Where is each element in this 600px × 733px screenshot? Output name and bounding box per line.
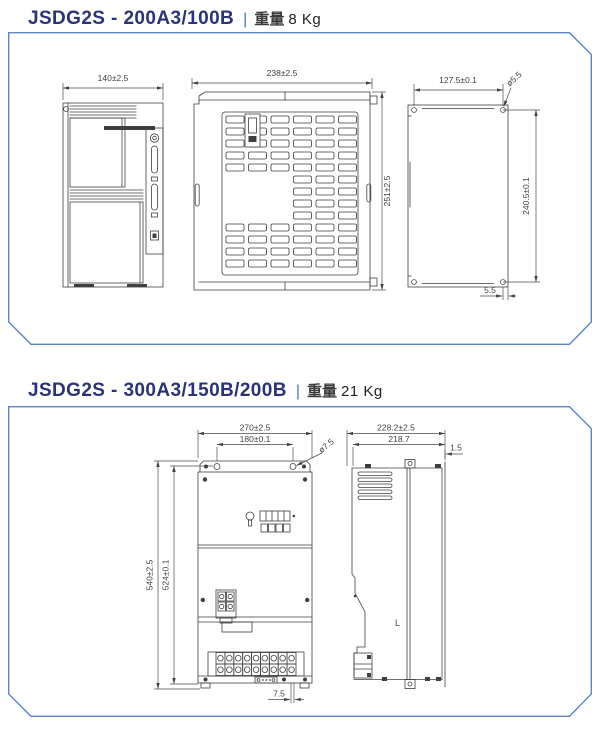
dim-mount-height: 240.5±0.1 [521,177,531,215]
dim-hole-height: 524±0.1 [161,559,171,590]
dim-mount-edge-offset: 5.5 [484,285,496,295]
dimension-sheet: JSDG2S - 200A3/100B|重量8 Kg 140±2.5 [0,0,600,733]
dim-vent-width: 238±2.5 [267,68,298,78]
section2-drawing: 270±2.5 180±0.1 ø7.5 540±2.5 524±0.1 7.5 [8,406,592,717]
dim-mount-hole-dia: ø5.5 [504,69,524,88]
dim-hole-span: 180±0.1 [240,434,271,444]
front-view: 140±2.5 [63,73,163,287]
mount-view: 127.5±0.1 ø5.5 240.5±0.1 5.5 [408,69,540,300]
dim-vent-height: 251±2.5 [382,175,392,206]
dim-front-height: 540±2.5 [145,559,155,590]
model-name: JSDG2S - 300A3/150B/200B [28,380,287,401]
section2-title: JSDG2S - 300A3/150B/200B|重量21 Kg [28,380,383,402]
vent-label-badge [245,114,260,147]
panel-frame [9,407,592,717]
weight-value: 8 Kg [288,11,321,28]
weight-label: 重量 [254,11,284,28]
panel-frame [9,33,592,345]
dim-side-width: 228.2±2.5 [377,423,415,433]
dim-front-width: 270±2.5 [240,423,271,433]
dim-bottom-offset: 7.5 [273,689,285,699]
dim-flange-offset: 1.5 [450,443,462,453]
title-separator: | [243,11,247,28]
section1-drawing-panel: 140±2.5 [8,32,592,345]
weight-value: 21 Kg [341,383,383,400]
dim-side-depth: 218.7 [388,434,410,444]
section1-drawing: 140±2.5 [8,32,592,345]
side-view: 228.2±2.5 218.7 1.5 L [347,423,463,689]
section2-drawing-panel: 270±2.5 180±0.1 ø7.5 540±2.5 524±0.1 7.5 [8,406,592,717]
dim-hole-dia: ø7.5 [316,436,336,455]
section1-title: JSDG2S - 200A3/100B|重量8 Kg [28,8,321,30]
side-mark-label: L [395,618,400,628]
title-separator: | [296,383,300,400]
terminal-block [216,653,296,676]
model-name: JSDG2S - 200A3/100B [28,8,234,29]
dim-front-width: 140±2.5 [98,73,129,83]
vent-view: 238±2.5 251±2.5 [192,68,392,290]
weight-label: 重量 [307,383,337,400]
front-view: 270±2.5 180±0.1 ø7.5 540±2.5 524±0.1 7.5 [145,423,337,704]
dim-mount-width: 127.5±0.1 [439,75,477,85]
